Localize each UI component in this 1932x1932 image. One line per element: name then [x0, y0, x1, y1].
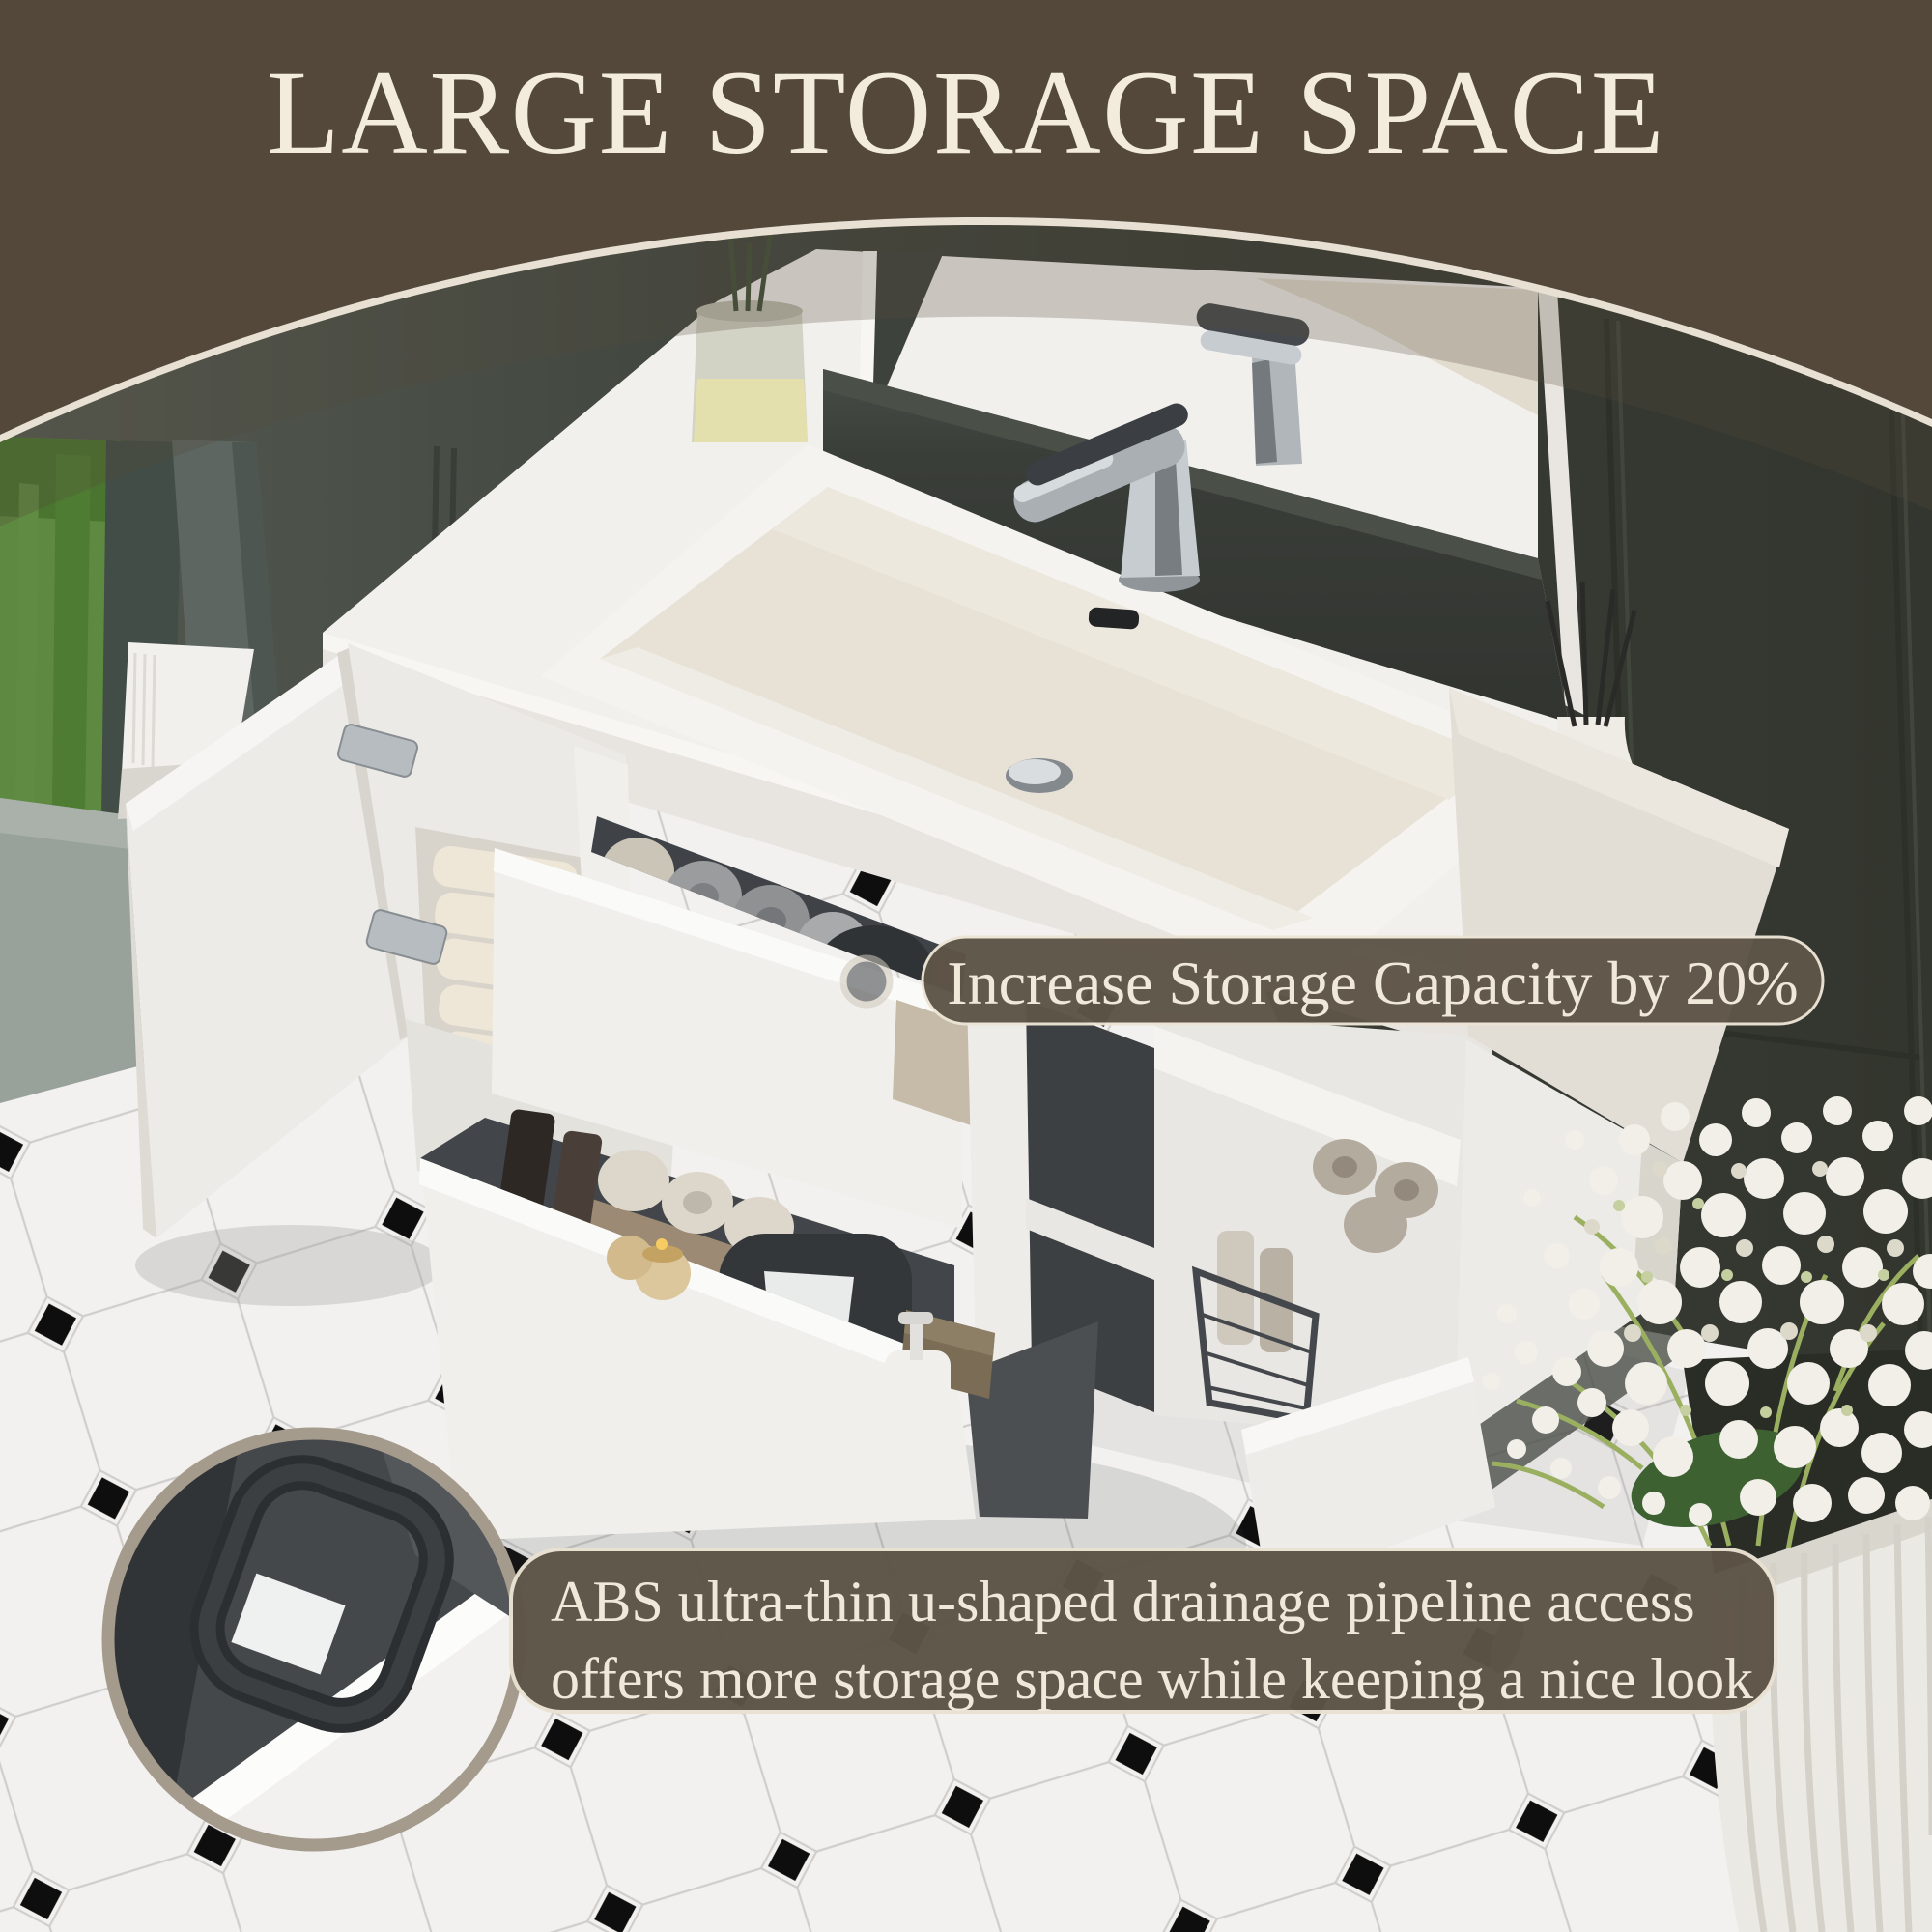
svg-text:offers more storage space whil: offers more storage space while keeping … — [551, 1647, 1753, 1711]
svg-text:ABS ultra-thin u-shaped draina: ABS ultra-thin u-shaped drainage pipelin… — [551, 1570, 1695, 1634]
svg-text:LARGE STORAGE SPACE: LARGE STORAGE SPACE — [267, 46, 1665, 179]
svg-text:Increase Storage Capacity by 2: Increase Storage Capacity by 20% — [947, 949, 1798, 1017]
